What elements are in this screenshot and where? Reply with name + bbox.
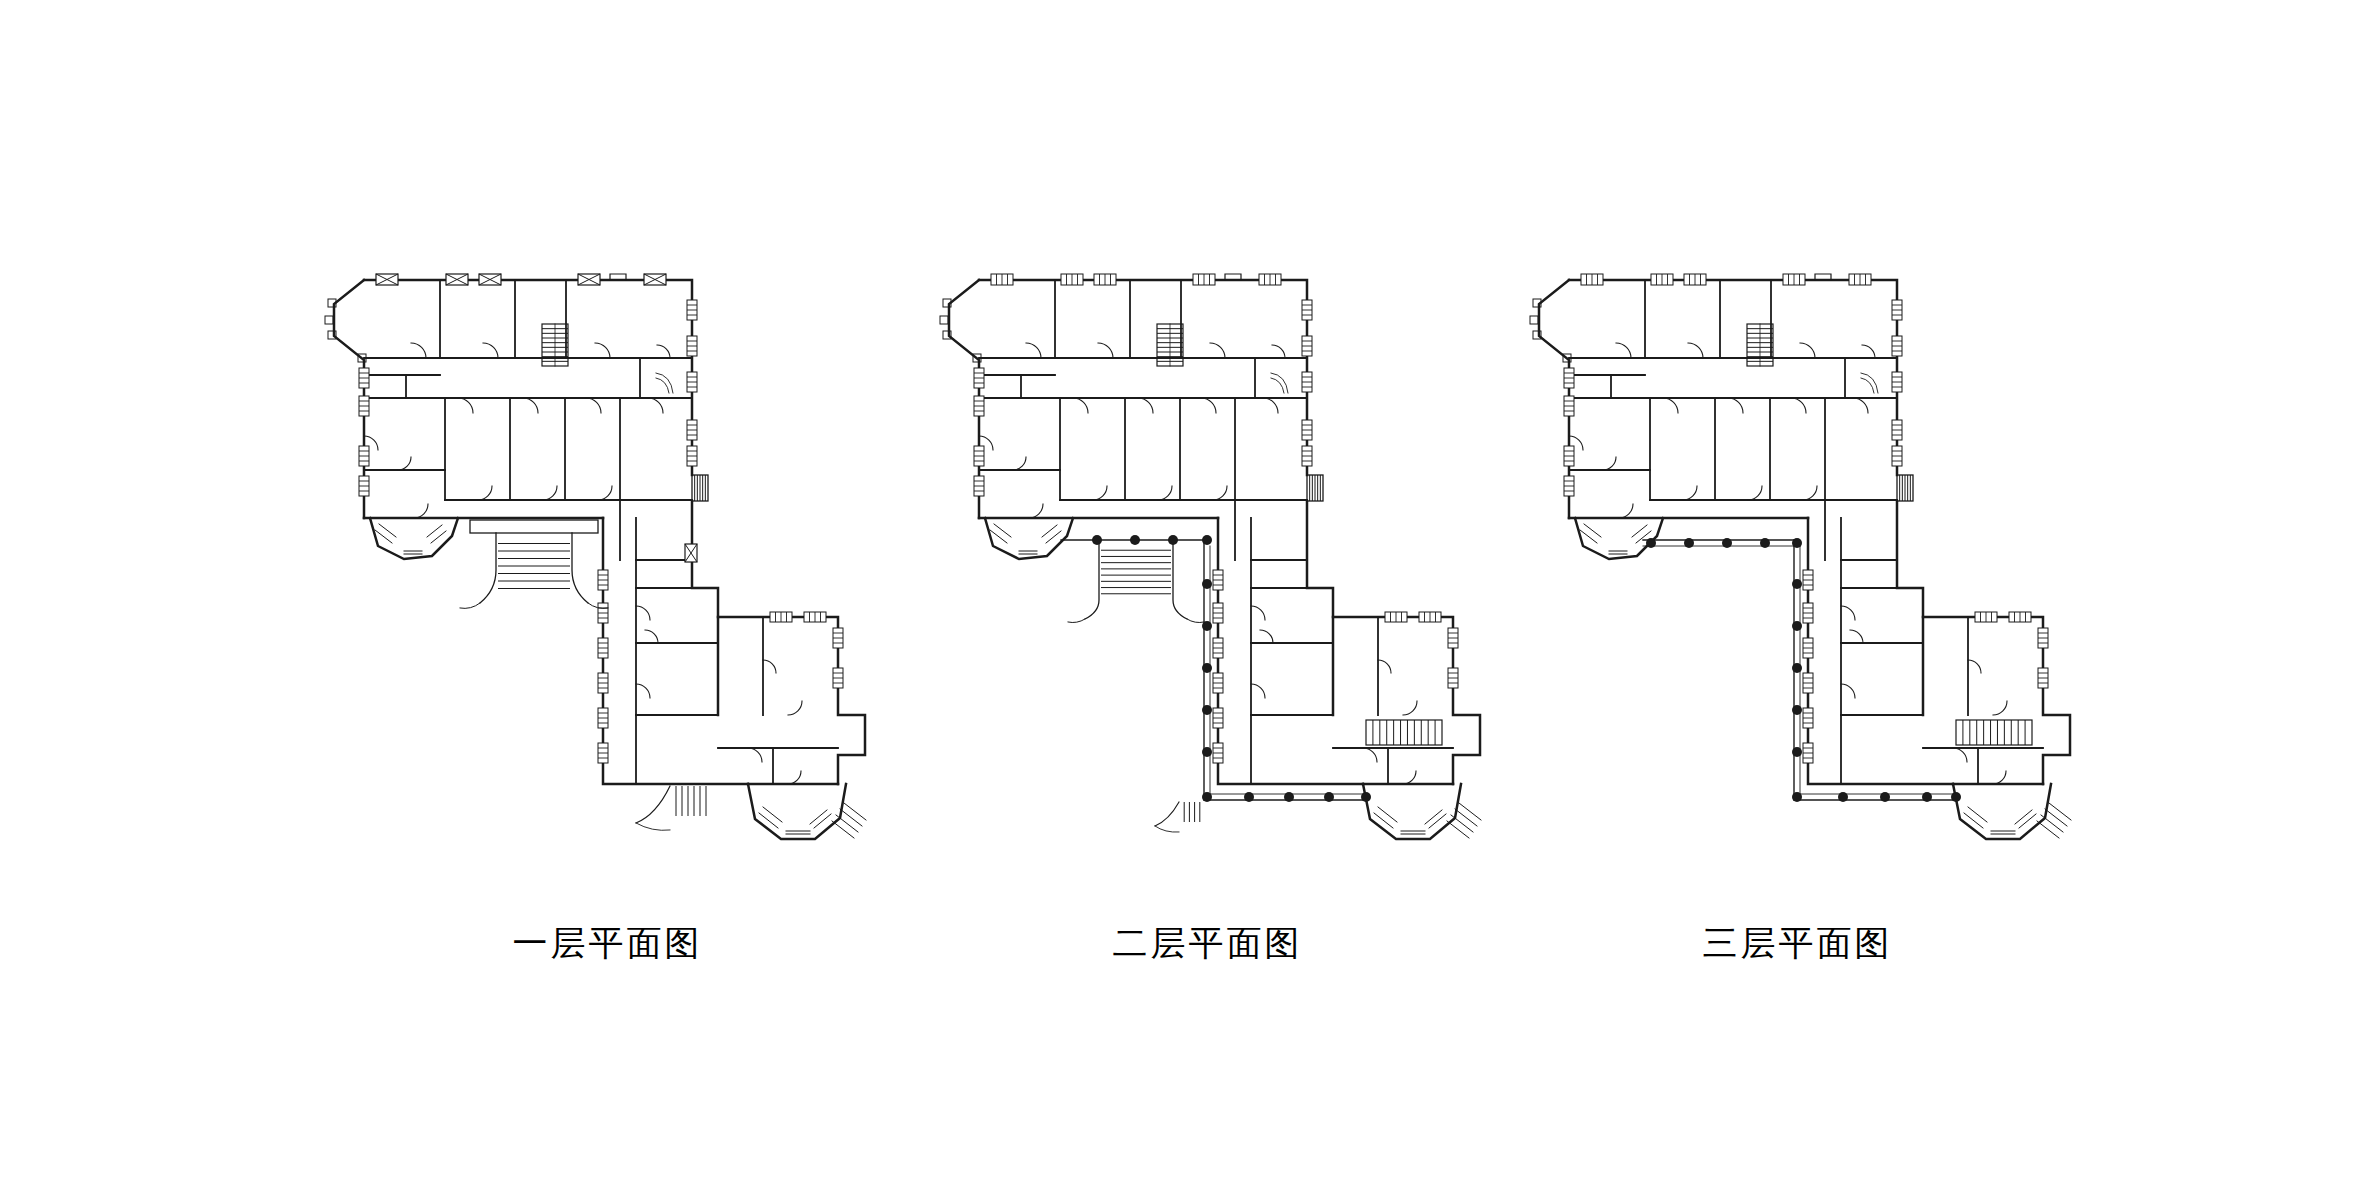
floor-plan-1-drawing <box>318 270 873 870</box>
floor-plan-1 <box>318 270 873 870</box>
floor-plan-2 <box>933 270 1488 870</box>
floor-plan-2-drawing <box>933 270 1488 870</box>
floor-plan-3 <box>1523 270 2078 870</box>
floor-plan-1-caption: 一层平面图 <box>330 920 885 967</box>
floor-plan-3-drawing <box>1523 270 2078 870</box>
floor-plan-2-caption: 二层平面图 <box>930 920 1485 967</box>
floor-plan-3-caption: 三层平面图 <box>1520 920 2075 967</box>
drawing-sheet: 一层平面图 二层平面图 三层平面图 <box>0 0 2362 1181</box>
